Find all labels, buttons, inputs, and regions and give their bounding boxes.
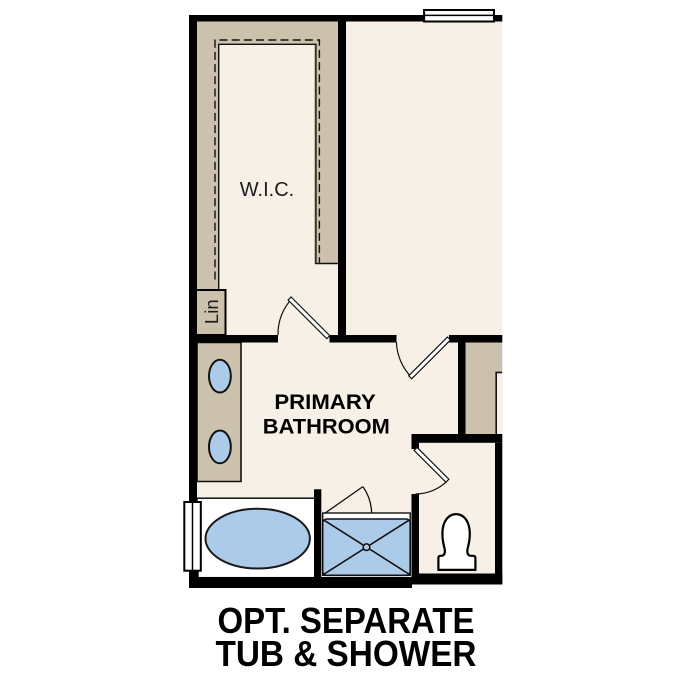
svg-text:BATHROOM: BATHROOM	[263, 415, 390, 439]
svg-text:PRIMARY: PRIMARY	[274, 390, 376, 414]
svg-text:W.I.C.: W.I.C.	[240, 179, 294, 201]
svg-text:TUB & SHOWER: TUB & SHOWER	[216, 633, 477, 674]
svg-text:Lin: Lin	[201, 299, 222, 324]
